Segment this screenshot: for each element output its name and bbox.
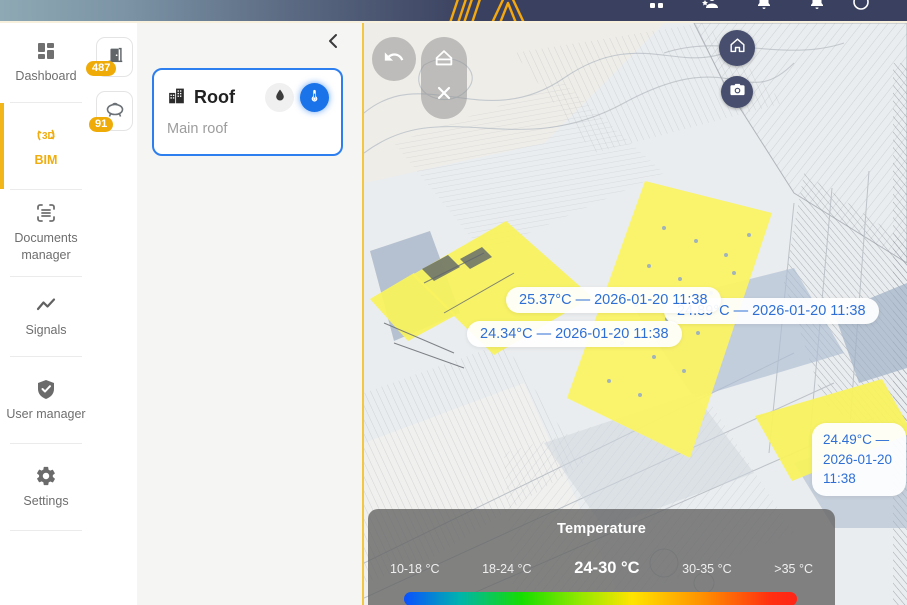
- notifications-icon[interactable]: [808, 0, 826, 11]
- legend-range-active: 24-30 °C: [574, 559, 639, 578]
- sidebar-item-label: Dashboard: [13, 68, 78, 85]
- temp-label[interactable]: 24.49°C — 2026-01-20 11:38: [812, 423, 906, 496]
- documents-icon: [35, 202, 57, 224]
- section-cut-icon: [434, 83, 454, 108]
- roof-view-button[interactable]: [431, 48, 457, 74]
- sidebar-item-documents-manager[interactable]: Documents manager: [0, 190, 92, 276]
- rooms-panel: Roof Main roof: [137, 23, 362, 605]
- building-icon: [167, 86, 186, 110]
- sidebar-item-signals[interactable]: Signals: [0, 277, 92, 356]
- sidebar-item-label: BIM: [33, 152, 60, 169]
- bim-app-window: Dashboard 3D BIM Doc: [0, 0, 907, 605]
- tanks-count-badge: 91: [89, 117, 113, 132]
- brand-logo: [438, 0, 538, 23]
- apps-icon[interactable]: [648, 0, 666, 11]
- temperature-legend: Temperature 10-18 °C 18-24 °C 24-30 °C 3…: [368, 509, 835, 605]
- account-icon[interactable]: [852, 0, 870, 11]
- collapse-panel-icon[interactable]: [326, 33, 344, 51]
- section-cut-button[interactable]: [431, 83, 457, 109]
- legend-title: Temperature: [368, 509, 835, 537]
- viewer-tool-group: [421, 37, 467, 119]
- sidebar-item-label: Settings: [21, 493, 70, 510]
- temp-label[interactable]: 24.34°C — 2026-01-20 11:38: [467, 321, 682, 347]
- sidebar-item-label: User manager: [4, 406, 87, 423]
- temp-label[interactable]: 25.37°C — 2026-01-20 11:38: [506, 287, 721, 313]
- settings-icon: [35, 465, 57, 487]
- dashboard-icon: [35, 40, 57, 62]
- roof-room-card[interactable]: Roof Main roof: [152, 68, 343, 156]
- thermometer-icon: [307, 88, 322, 108]
- panel-viewer-divider: [362, 23, 364, 605]
- sidebar-item-settings[interactable]: Settings: [0, 444, 92, 530]
- sidebar-item-label: Signals: [24, 322, 69, 339]
- sidebar-divider: [10, 530, 82, 531]
- sidebar-item-bim[interactable]: 3D BIM: [0, 103, 92, 189]
- legend-range: 10-18 °C: [390, 562, 439, 576]
- bim-3d-viewer[interactable]: 24.89°C — 2026-01-20 11:38 25.37°C — 202…: [364, 23, 907, 605]
- camera-icon: [729, 81, 746, 103]
- thermometer-toggle[interactable]: [300, 83, 329, 112]
- sidebar-item-label: Documents manager: [0, 230, 92, 264]
- active-indicator-bar: [0, 103, 4, 189]
- legend-range: 30-35 °C: [682, 562, 731, 576]
- roof-icon: [433, 47, 455, 74]
- undo-button[interactable]: [372, 37, 416, 81]
- room-card-subtitle: Main roof: [167, 121, 329, 137]
- home-icon: [728, 36, 747, 60]
- temperature-gradient-bar: [404, 592, 797, 605]
- user-manager-icon: [35, 378, 57, 400]
- sidebar-nav: Dashboard 3D BIM Doc: [0, 23, 93, 605]
- legend-ranges-row: 10-18 °C 18-24 °C 24-30 °C 30-35 °C >35 …: [368, 559, 835, 578]
- asset-tab-strip: 487 91: [92, 23, 138, 605]
- user-star-icon[interactable]: [701, 0, 719, 11]
- water-drop-icon: [273, 88, 287, 107]
- legend-range: >35 °C: [774, 562, 813, 576]
- topbar: [0, 0, 907, 23]
- sidebar-item-user-manager[interactable]: User manager: [0, 357, 92, 443]
- undo-icon: [383, 46, 405, 73]
- signals-icon: [35, 294, 57, 316]
- room-card-title: Roof: [194, 87, 265, 108]
- legend-range: 18-24 °C: [482, 562, 531, 576]
- home-view-button[interactable]: [719, 30, 755, 66]
- bim-3d-icon: 3D: [35, 124, 57, 146]
- screenshot-button[interactable]: [721, 76, 753, 108]
- doors-count-badge: 487: [86, 61, 116, 76]
- water-drop-toggle[interactable]: [265, 83, 294, 112]
- bell-icon[interactable]: [755, 0, 773, 11]
- sidebar-item-dashboard[interactable]: Dashboard: [0, 23, 92, 102]
